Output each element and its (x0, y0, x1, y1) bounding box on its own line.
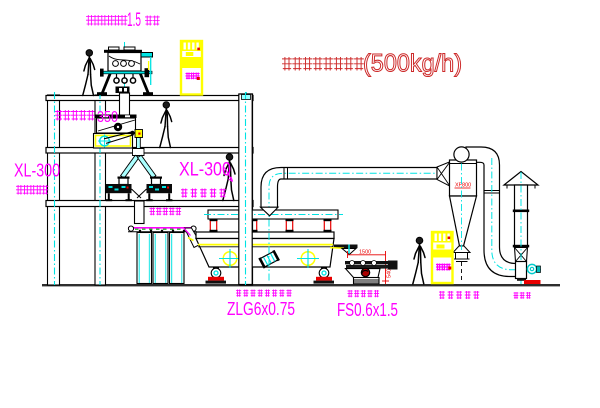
svg-text:XL-300: XL-300 (14, 161, 60, 181)
svg-text:ZLG6x0.75: ZLG6x0.75 (227, 299, 295, 319)
svg-text:350: 350 (97, 109, 118, 126)
svg-text:1.5: 1.5 (127, 10, 141, 31)
svg-text:1500: 1500 (359, 250, 371, 256)
svg-text:(500kg/h): (500kg/h) (363, 50, 462, 78)
svg-text:540: 540 (387, 269, 393, 278)
svg-text:XL-300: XL-300 (179, 160, 231, 181)
svg-text:FS0.6x1.5: FS0.6x1.5 (337, 300, 398, 320)
